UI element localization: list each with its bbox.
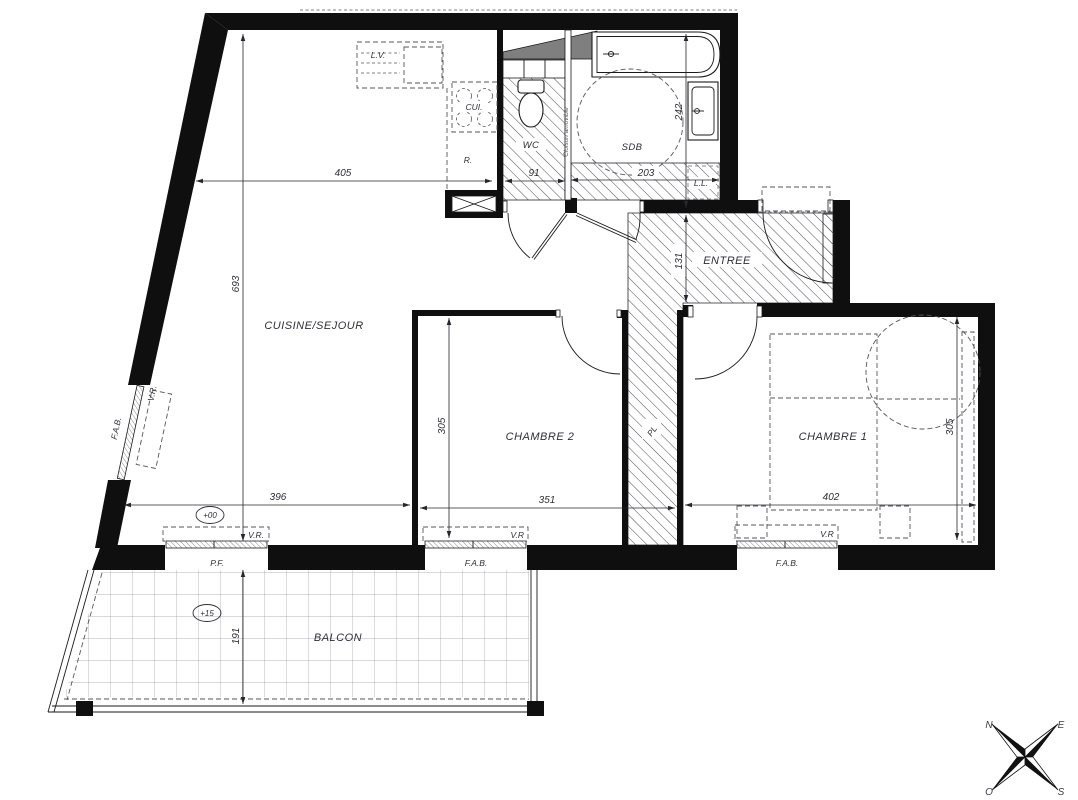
- window-label-fab-ch1: F.A.B.: [776, 558, 799, 568]
- bathtub: [592, 32, 720, 77]
- wall-left-upper: [128, 13, 228, 385]
- dim-sejour-d: 693: [231, 275, 242, 292]
- stove-label: CUI.: [466, 102, 483, 112]
- dim-ch2-d: 305: [437, 417, 448, 434]
- window-label-fab-ch2: F.A.B.: [465, 558, 488, 568]
- bottom-windows: [163, 525, 838, 548]
- dishwasher-label: L.V.: [371, 50, 386, 60]
- window-label-vr-ch1: V.R: [820, 529, 834, 539]
- dim-sdb-w: 203: [637, 168, 655, 179]
- dim-wc-w: 91: [528, 168, 539, 179]
- entry-door-leaf: [823, 214, 834, 283]
- wall-ch2-left: [412, 310, 418, 545]
- wall-ch1-top: [757, 303, 995, 317]
- wall-right-ch1: [978, 303, 995, 570]
- window-label-fab-left: F.A.B.: [109, 416, 123, 440]
- landing-dashed: [762, 187, 830, 211]
- room-label-chambre2: CHAMBRE 2: [506, 431, 575, 443]
- dim-sejour-w-bottom: 396: [270, 492, 287, 503]
- compass-letter-o: O: [985, 787, 993, 798]
- room-label-wc: WC: [523, 140, 540, 151]
- left-window: [117, 385, 171, 479]
- wall-entree-top: [672, 200, 758, 213]
- balcony-post-left: [76, 701, 93, 716]
- washer-label: L.L.: [694, 178, 708, 188]
- wall-entree-right: [833, 200, 850, 303]
- dim-entree-d: 131: [674, 253, 685, 270]
- floor-plan-svg: BALCON: [0, 0, 1078, 800]
- dim-sejour-w: 405: [335, 168, 352, 179]
- dim-ch2-w: 351: [539, 495, 556, 506]
- window-label-vr-sejour: V.R.: [248, 530, 264, 540]
- compass-letter-n: N: [985, 720, 993, 731]
- compass-letter-e: E: [1058, 720, 1065, 731]
- wall-ch2-top: [412, 310, 556, 316]
- window-label-vr-left: V.R.: [146, 385, 159, 403]
- fridge-label: R.: [464, 155, 473, 165]
- wall-sdb-bottom-right: [640, 200, 672, 213]
- partition-note: Cloison amovible: [563, 107, 570, 157]
- kitchen-dishwasher: [357, 42, 443, 88]
- dim-ch1-w: 402: [823, 492, 840, 503]
- wc-shelf: [503, 60, 565, 78]
- room-label-sejour: CUISINE/SEJOUR: [264, 320, 363, 332]
- compass-letter-s: S: [1058, 787, 1065, 798]
- wall-bottom-d: [838, 545, 995, 570]
- balcony: BALCON: [48, 568, 544, 716]
- wall-sdb-right: [720, 30, 738, 213]
- room-label-balcon: BALCON: [314, 632, 362, 644]
- wall-pl-right: [677, 310, 683, 545]
- window-label-pf: P.F.: [210, 558, 223, 568]
- dim-balcon-d: 191: [231, 628, 242, 645]
- balcony-post-right: [527, 701, 544, 716]
- room-label-sdb: SDB: [622, 142, 643, 153]
- room-label-entree: ENTREE: [703, 255, 751, 267]
- wall-wc-left: [497, 30, 503, 190]
- level-main-text: +00: [203, 511, 217, 520]
- duct-vent: [452, 196, 496, 212]
- room-label-chambre1: CHAMBRE 1: [799, 431, 868, 443]
- wall-top: [205, 13, 738, 30]
- sdb-sink: [688, 82, 718, 140]
- wall-bottom-c: [527, 545, 737, 570]
- soffit-gray: [503, 31, 597, 59]
- wall-bottom-b: [268, 545, 425, 570]
- floor-plan-page: BALCON: [0, 0, 1078, 800]
- dim-ch1-d: 305: [945, 418, 956, 435]
- wall-left-lower: [95, 480, 131, 548]
- sdb-clearance-circle: [577, 69, 683, 175]
- balcony-tile-grid: [60, 568, 532, 698]
- wall-pl-left: [622, 312, 628, 545]
- window-label-vr-ch2: V.R: [510, 530, 524, 540]
- level-main: +00: [196, 507, 224, 524]
- wall-bottom-a: [92, 545, 165, 570]
- toilet: [518, 80, 544, 127]
- compass-rose: N E O S: [985, 720, 1065, 798]
- level-balcony-text: +15: [200, 609, 214, 618]
- dim-sdb-d: 242: [674, 103, 685, 121]
